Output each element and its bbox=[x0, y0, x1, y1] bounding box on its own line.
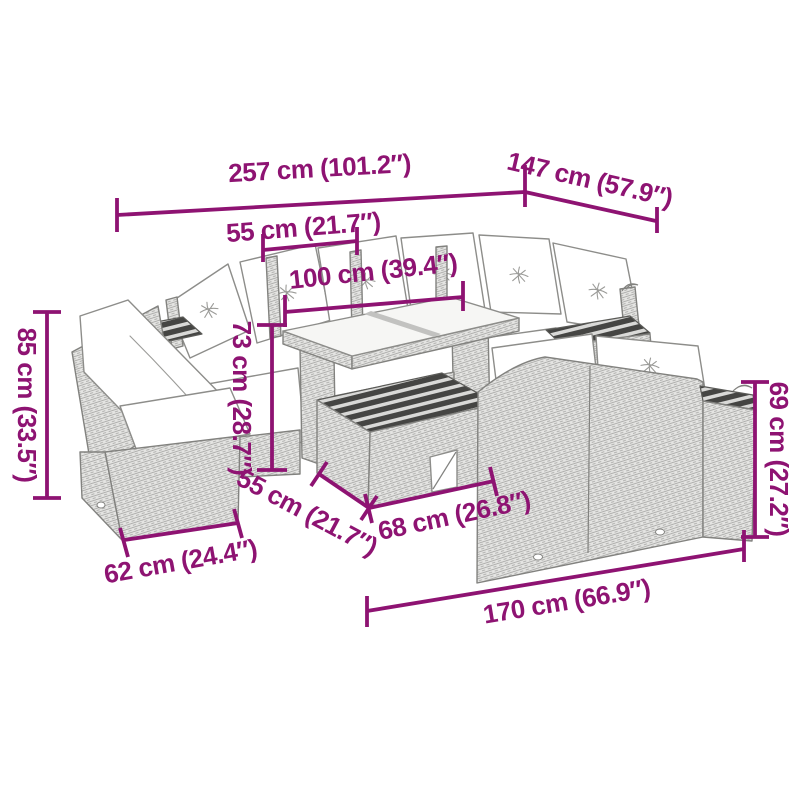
diagram-canvas: 257 cm (101.2″) 147 cm (57.9″) 55 cm (21… bbox=[0, 0, 800, 800]
dim-overall-depth: 147 cm (57.9″) bbox=[504, 146, 675, 233]
dim-label-table-height: 73 cm (28.7″) bbox=[227, 321, 257, 476]
wicker-curl bbox=[733, 385, 752, 391]
two-seater-sofa bbox=[477, 334, 756, 583]
product-dimension-diagram: 257 cm (101.2″) 147 cm (57.9″) 55 cm (21… bbox=[0, 0, 800, 800]
dim-label-back-height: 85 cm (33.5″) bbox=[12, 328, 42, 483]
rivet bbox=[534, 554, 543, 560]
dim-label-overall-width: 257 cm (101.2″) bbox=[227, 148, 411, 188]
dim-label-sofa-width: 170 cm (66.9″) bbox=[481, 573, 652, 630]
dim-label-sofa-back-height: 69 cm (27.2″) bbox=[764, 382, 794, 537]
dim-label-overall-depth: 147 cm (57.9″) bbox=[504, 146, 675, 213]
armrest-side bbox=[703, 401, 756, 541]
dim-back-height: 85 cm (33.5″) bbox=[12, 312, 61, 498]
rivet bbox=[656, 529, 665, 535]
rivet bbox=[97, 502, 105, 508]
